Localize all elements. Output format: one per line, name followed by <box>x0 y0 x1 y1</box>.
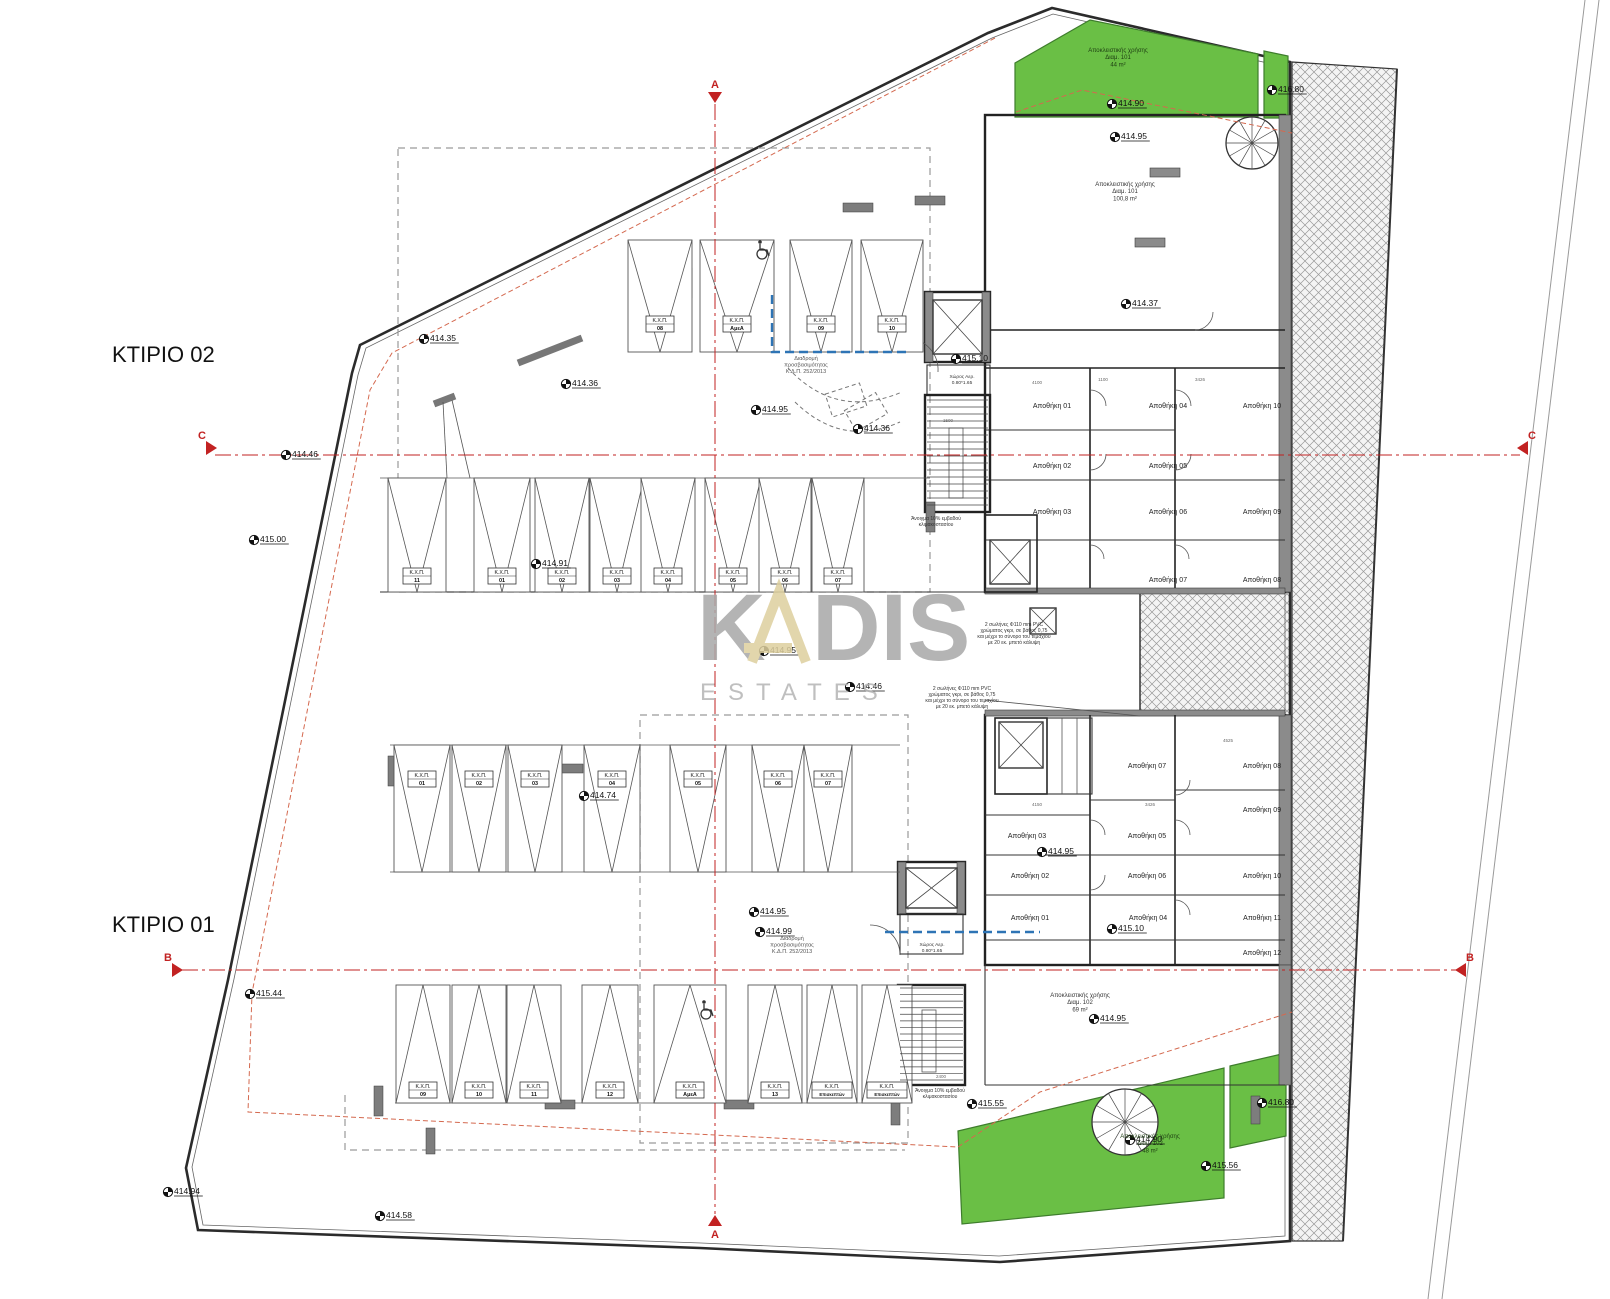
elevation-marker: 414.46 <box>281 449 320 460</box>
elevation-value: 415.10 <box>962 353 988 363</box>
watermark-k: K <box>697 575 766 681</box>
elevation-value: 415.00 <box>260 534 286 544</box>
storage-room-label: Αποθήκη 03 <box>1033 509 1071 516</box>
svg-text:C: C <box>198 430 206 442</box>
elevation-value: 414.91 <box>542 558 568 568</box>
parking-label-prefix: Κ.Χ.Π. <box>603 1084 618 1090</box>
section-marker-b: B <box>164 952 183 977</box>
parking-label-prefix: Κ.Χ.Π. <box>605 773 620 779</box>
parking-label-prefix: Κ.Χ.Π. <box>825 1084 840 1090</box>
parking-label-number: 11 <box>414 578 420 584</box>
elevation-marker: 414.35 <box>419 333 458 344</box>
elevation-value: 414.95 <box>1100 1013 1126 1023</box>
parking-label-prefix: Κ.Χ.Π. <box>661 570 676 576</box>
storage-room-label: Αποθήκη 05 <box>1128 833 1166 840</box>
elevation-value: 414.36 <box>864 423 890 433</box>
parking-label-prefix: Κ.Χ.Π. <box>610 570 625 576</box>
elevation-marker: 415.56 <box>1201 1160 1240 1171</box>
parking-stall: Κ.Χ.Π.10 <box>861 240 923 352</box>
parking-label-number: ΑμεΑ <box>730 326 744 332</box>
storage-room-label: Αποθήκη 07 <box>1128 763 1166 770</box>
vent-room-note-top: Χώρος Αερ.0.80*1.65 <box>949 373 974 386</box>
parking-label-number: 02 <box>476 781 482 787</box>
parking-stall: Κ.Χ.Π.11 <box>507 985 561 1103</box>
dimension-label: 1100 <box>1098 377 1108 382</box>
elevation-value: 414.99 <box>766 926 792 936</box>
parking-label-number: 09 <box>818 326 824 332</box>
elevation-marker: 414.37 <box>1121 298 1160 309</box>
parking-label-prefix: Κ.Χ.Π. <box>768 1084 783 1090</box>
storage-room-label: Αποθήκη 06 <box>1128 873 1166 880</box>
svg-text:A: A <box>711 79 719 91</box>
parking-label-prefix: Κ.Χ.Π. <box>528 773 543 779</box>
elevation-marker: 416.80 <box>1267 84 1306 95</box>
parking-stall: Κ.Χ.Π.03 <box>508 745 562 872</box>
parking-label-number: 03 <box>614 578 620 584</box>
parking-stall: Κ.Χ.Π.02 <box>452 745 506 872</box>
storage-room-label: Αποθήκη 09 <box>1243 509 1281 516</box>
storage-room-label: Αποθήκη 01 <box>1033 403 1071 410</box>
parking-label-number: 10 <box>889 326 895 332</box>
elevation-marker: 414.91 <box>531 558 570 569</box>
elevation-value: 414.95 <box>1048 846 1074 856</box>
parking-stall: Κ.Χ.Π.10 <box>452 985 506 1103</box>
accessibility-note-bottom: ΔιαδρομήπροσβασιμότηταςΚ.Δ.Π. 252/2013 <box>770 935 814 955</box>
svg-text:B: B <box>164 952 172 964</box>
elevation-marker: 415.00 <box>249 534 288 545</box>
storage-room-label: Αποθήκη 09 <box>1243 807 1281 814</box>
parking-stall: Κ.Χ.Π.06 <box>752 745 804 872</box>
parking-stall: Κ.Χ.Π.08 <box>628 240 692 352</box>
parking-label-number: 01 <box>499 578 505 584</box>
parking-stall: Κ.Χ.Π.ΑμεΑ <box>700 240 774 352</box>
road-strip <box>1292 0 1599 1299</box>
pipes-note-2: 2 σωλήνες Φ110 mm PVCχρώματος γκρι, σε β… <box>925 685 998 710</box>
room-top-label: Αποκλειστικής χρήσηςΔιαμ. 101100,8 m² <box>1095 181 1155 202</box>
vent-room-note-bottom: Χώρος Αερ.0.80*1.65 <box>919 941 944 954</box>
elevation-value: 415.10 <box>1118 923 1144 933</box>
storage-room-label: Αποθήκη 08 <box>1243 763 1281 770</box>
parking-stall: Κ.Χ.Π.04 <box>641 478 695 592</box>
storage-room-label: Αποθήκη 02 <box>1011 873 1049 880</box>
svg-text:C: C <box>1528 430 1536 442</box>
storage-room-label: Αποθήκη 06 <box>1149 509 1187 516</box>
storage-room-label: Αποθήκη 04 <box>1129 915 1167 922</box>
accessibility-note-top: ΔιαδρομήπροσβασιμότηταςΚ.Δ.Π. 252/2013 <box>784 355 828 375</box>
parking-stall: Κ.Χ.Π.09 <box>396 985 450 1103</box>
parking-label-prefix: Κ.Χ.Π. <box>415 773 430 779</box>
parking-label-prefix: Κ.Χ.Π. <box>880 1084 895 1090</box>
parking-label-prefix: Κ.Χ.Π. <box>472 773 487 779</box>
parking-label-prefix: Κ.Χ.Π. <box>778 570 793 576</box>
svg-text:A: A <box>711 1229 719 1241</box>
parking-stall: Κ.Χ.Π.11 <box>388 478 446 592</box>
parking-label-number: 01 <box>419 781 425 787</box>
parking-stall: Κ.Χ.Π.06 <box>759 478 811 592</box>
elevation-marker: 415.10 <box>1107 923 1146 934</box>
elevator-shaft <box>933 300 982 354</box>
building-01-label: ΚΤΙΡΙΟ 01 <box>112 912 215 937</box>
parking-stall: Κ.Χ.Π.05 <box>670 745 726 872</box>
section-marker-a: A <box>708 79 722 103</box>
svg-text:B: B <box>1466 952 1474 964</box>
elevation-marker: 414.99 <box>755 926 794 937</box>
section-marker-b: B <box>1455 952 1474 977</box>
elevation-marker: 414.36 <box>853 423 892 434</box>
parking-stall: Κ.Χ.Π.02 <box>535 478 589 592</box>
section-marker-c: C <box>1517 430 1536 455</box>
parking-stall: Κ.Χ.Π.Επισκεπτών <box>862 985 912 1103</box>
building-02-label: ΚΤΙΡΙΟ 02 <box>112 342 215 367</box>
section-marker-a: A <box>708 1215 722 1241</box>
elevation-marker: 414.90 <box>1107 98 1146 109</box>
elevation-marker: 415.55 <box>967 1098 1006 1109</box>
elevation-marker: 414.95 <box>749 906 788 917</box>
storage-room-label: Αποθήκη 11 <box>1243 915 1281 922</box>
elevation-value: 414.35 <box>430 333 456 343</box>
elevation-value: 414.95 <box>1121 131 1147 141</box>
elevation-marker: 414.95 <box>751 404 790 415</box>
elevation-value: 416.80 <box>1278 84 1304 94</box>
elevation-value: 414.94 <box>174 1186 200 1196</box>
parking-label-number: 12 <box>607 1092 613 1098</box>
parking-stall: Κ.Χ.Π.07 <box>804 745 852 872</box>
storage-room-label: Αποθήκη 01 <box>1011 915 1049 922</box>
parking-label-number: 07 <box>825 781 831 787</box>
elevation-value: 415.56 <box>1212 1160 1238 1170</box>
elevation-marker: 415.44 <box>245 988 284 999</box>
elevation-value: 415.44 <box>256 988 282 998</box>
elevation-marker: 414.95 <box>1110 131 1149 142</box>
parking-label-number: 02 <box>559 578 565 584</box>
parking-label-prefix: Κ.Χ.Π. <box>527 1084 542 1090</box>
storage-room-label: Αποθήκη 02 <box>1033 463 1071 470</box>
parking-stall: Κ.Χ.Π.09 <box>790 240 852 352</box>
parking-label-prefix: Κ.Χ.Π. <box>771 773 786 779</box>
elevation-value: 414.95 <box>762 404 788 414</box>
dimension-label: 3426 <box>1145 802 1156 807</box>
column <box>915 196 945 205</box>
parking-label-number: 06 <box>775 781 781 787</box>
pipes-note-1: 2 σωλήνες Φ110 mm PVCχρώματος γκρι, σε β… <box>977 621 1050 646</box>
parking-stall: Κ.Χ.Π.01 <box>394 745 450 872</box>
parking-label-number: 03 <box>532 781 538 787</box>
stair-treads <box>927 400 988 505</box>
elevation-value: 414.36 <box>572 378 598 388</box>
elevation-value: 414.90 <box>1118 98 1144 108</box>
elevation-value: 414.95 <box>760 906 786 916</box>
elevation-marker: 416.80 <box>1257 1097 1296 1108</box>
dimension-label: 4150 <box>1032 802 1043 807</box>
storage-room-label: Αποθήκη 07 <box>1149 577 1187 584</box>
dimension-labels-layer: 41001100342641503426452524001500 <box>936 377 1234 1079</box>
elevation-value: 415.55 <box>978 1098 1004 1108</box>
elevation-marker: 414.36 <box>561 378 600 389</box>
elevation-marker: 414.58 <box>375 1210 414 1221</box>
elevation-value: 414.37 <box>1132 298 1158 308</box>
stair-vent-note-bottom: Άνοιγμα 10% εμβαδούκλιμακοστασίου <box>915 1087 965 1100</box>
dimension-label: 2400 <box>936 1074 947 1079</box>
elevator-shaft <box>999 722 1043 768</box>
storage-room-label: Αποθήκη 03 <box>1008 833 1046 840</box>
parking-label-number: Επισκεπτών <box>874 1092 900 1097</box>
dimension-label: 3426 <box>1195 377 1206 382</box>
column <box>374 1086 383 1116</box>
parking-stall: Κ.Χ.Π.Επισκεπτών <box>807 985 857 1103</box>
parking-label-number: 05 <box>695 781 701 787</box>
parking-label-prefix: Κ.Χ.Π. <box>472 1084 487 1090</box>
section-marker-c: C <box>198 430 217 455</box>
parking-stall: Κ.Χ.Π.13 <box>748 985 802 1103</box>
parking-label-number: 09 <box>420 1092 426 1098</box>
parking-stall: Κ.Χ.Π.04 <box>584 745 640 872</box>
storage-room-label: Αποθήκη 10 <box>1243 403 1281 410</box>
parking-stall: Κ.Χ.Π.12 <box>582 985 638 1103</box>
stair-vent-note-top: Άνοιγμα 10% εμβαδούκλιμακοστασίου <box>911 515 961 528</box>
watermark-estates: ESTATES <box>700 679 890 706</box>
column <box>426 1128 435 1154</box>
elevator-shaft <box>906 868 957 908</box>
elevation-value: 414.74 <box>590 790 616 800</box>
site-plan-sheet: Κ.Χ.Π.08Κ.Χ.Π.ΑμεΑΚ.Χ.Π.09Κ.Χ.Π.10Κ.Χ.Π.… <box>0 0 1610 1299</box>
storage-room-label: Αποθήκη 04 <box>1149 403 1187 410</box>
kadis-watermark: K DIS ESTATES <box>697 575 970 706</box>
elevator-shaft <box>990 540 1030 584</box>
parking-label-prefix: Κ.Χ.Π. <box>653 318 668 324</box>
parking-stall: Κ.Χ.Π.01 <box>474 478 530 592</box>
parking-label-prefix: Κ.Χ.Π. <box>410 570 425 576</box>
dimension-label: 4100 <box>1032 380 1043 385</box>
dimension-label: 4525 <box>1223 738 1234 743</box>
parking-label-number: 04 <box>609 781 615 787</box>
room-bottom-label: Αποκλειστικής χρήσηςΔιαμ. 10269 m² <box>1050 992 1110 1013</box>
watermark-dis: DIS <box>812 575 970 681</box>
parking-label-prefix: Κ.Χ.Π. <box>814 318 829 324</box>
storage-room-label: Αποθήκη 05 <box>1149 463 1187 470</box>
parking-label-number: 13 <box>772 1092 778 1098</box>
parking-label-prefix: Κ.Χ.Π. <box>691 773 706 779</box>
storage-room-label: Αποθήκη 08 <box>1243 577 1281 584</box>
elevation-marker: 414.95 <box>1089 1013 1128 1024</box>
far-right-line-2 <box>1442 0 1599 1299</box>
green-area-bottom <box>958 1068 1224 1224</box>
far-right-line <box>1428 0 1585 1299</box>
ramp-dashed-arcs <box>788 368 902 431</box>
elevation-value: 414.46 <box>292 449 318 459</box>
parking-label-prefix: Κ.Χ.Π. <box>730 318 745 324</box>
parking-label-prefix: Κ.Χ.Π. <box>683 1084 698 1090</box>
elevation-marker: 414.94 <box>163 1186 202 1197</box>
parking-label-number: 11 <box>531 1092 537 1098</box>
elevation-marker: 414.74 <box>579 790 618 801</box>
storage-room-label: Αποθήκη 10 <box>1243 873 1281 880</box>
parking-label-prefix: Κ.Χ.Π. <box>885 318 900 324</box>
elevation-marker: 415.10 <box>951 353 990 364</box>
parking-stall: Κ.Χ.Π.03 <box>590 478 644 592</box>
dimension-label: 1500 <box>943 418 954 423</box>
parking-label-number: 10 <box>476 1092 482 1098</box>
parking-label-number: Επισκεπτών <box>819 1092 845 1097</box>
retaining-walls <box>434 338 582 478</box>
storage-room-label: Αποθήκη 12 <box>1243 950 1281 957</box>
parking-label-prefix: Κ.Χ.Π. <box>821 773 836 779</box>
parking-label-number: 06 <box>782 578 788 584</box>
parking-label-prefix: Κ.Χ.Π. <box>495 570 510 576</box>
column <box>843 203 873 212</box>
hatched-block-middle <box>1140 592 1290 715</box>
elevation-value: 414.58 <box>386 1210 412 1220</box>
elevation-marker: 414.95 <box>1037 846 1076 857</box>
parking-label-number: 04 <box>665 578 671 584</box>
parking-label-prefix: Κ.Χ.Π. <box>416 1084 431 1090</box>
parking-label-number: ΑμεΑ <box>683 1092 697 1098</box>
parking-label-number: 08 <box>657 326 663 332</box>
floor-plan-drawing: Κ.Χ.Π.08Κ.Χ.Π.ΑμεΑΚ.Χ.Π.09Κ.Χ.Π.10Κ.Χ.Π.… <box>0 0 1610 1299</box>
parking-label-prefix: Κ.Χ.Π. <box>555 570 570 576</box>
elevation-value: 416.80 <box>1268 1097 1294 1107</box>
